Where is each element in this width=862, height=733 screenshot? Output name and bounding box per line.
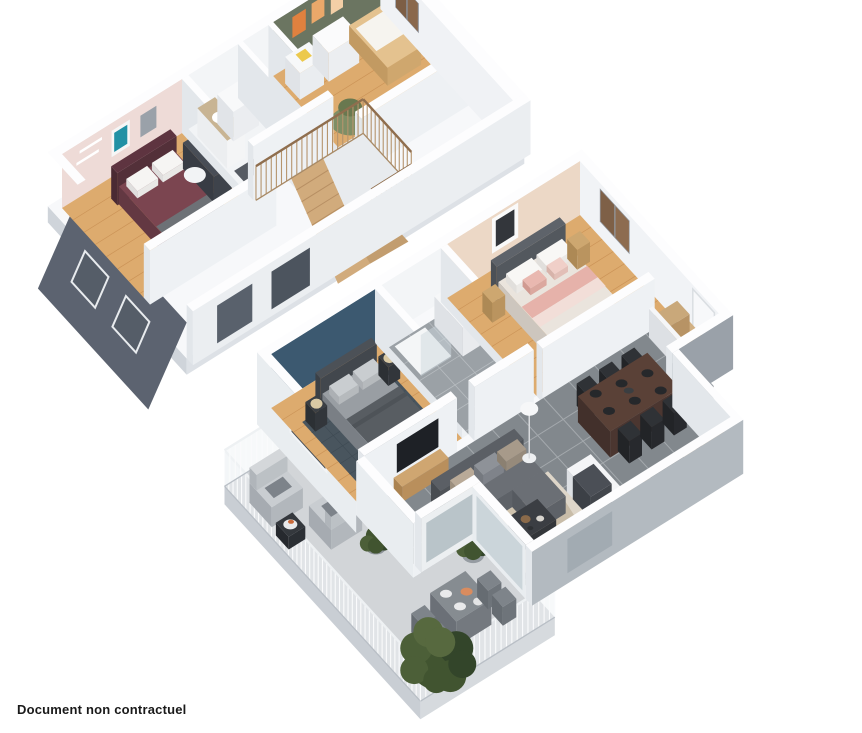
place-setting: [629, 397, 641, 405]
tray-deco: [288, 520, 294, 524]
place-setting: [454, 602, 466, 610]
table-deco: [536, 516, 544, 522]
wall: [468, 380, 474, 441]
place-setting: [655, 387, 667, 395]
place-setting: [590, 390, 602, 398]
table-deco: [527, 526, 533, 530]
place-setting: [616, 379, 628, 387]
wall: [526, 545, 532, 606]
wall: [415, 512, 421, 573]
wall: [144, 244, 150, 305]
place-setting: [440, 590, 452, 598]
terrace-tree: [448, 650, 476, 678]
terrace-tree: [425, 627, 455, 657]
centerpiece: [624, 388, 634, 394]
table-deco: [521, 515, 531, 523]
desk-chair: [184, 167, 206, 183]
floorplan-canvas: Document non contractuel: [0, 0, 862, 733]
wall: [537, 342, 543, 403]
lamp: [310, 399, 322, 409]
floorplan-3d-render: [0, 0, 862, 733]
bed-headboard: [111, 166, 117, 205]
place-setting: [461, 588, 473, 596]
wall: [187, 305, 193, 366]
document-disclaimer: Document non contractuel: [17, 702, 186, 717]
lamp-shade: [520, 402, 538, 416]
wall: [248, 140, 254, 200]
place-setting: [603, 407, 615, 415]
terrace-tree: [423, 667, 449, 693]
place-setting: [641, 369, 653, 377]
